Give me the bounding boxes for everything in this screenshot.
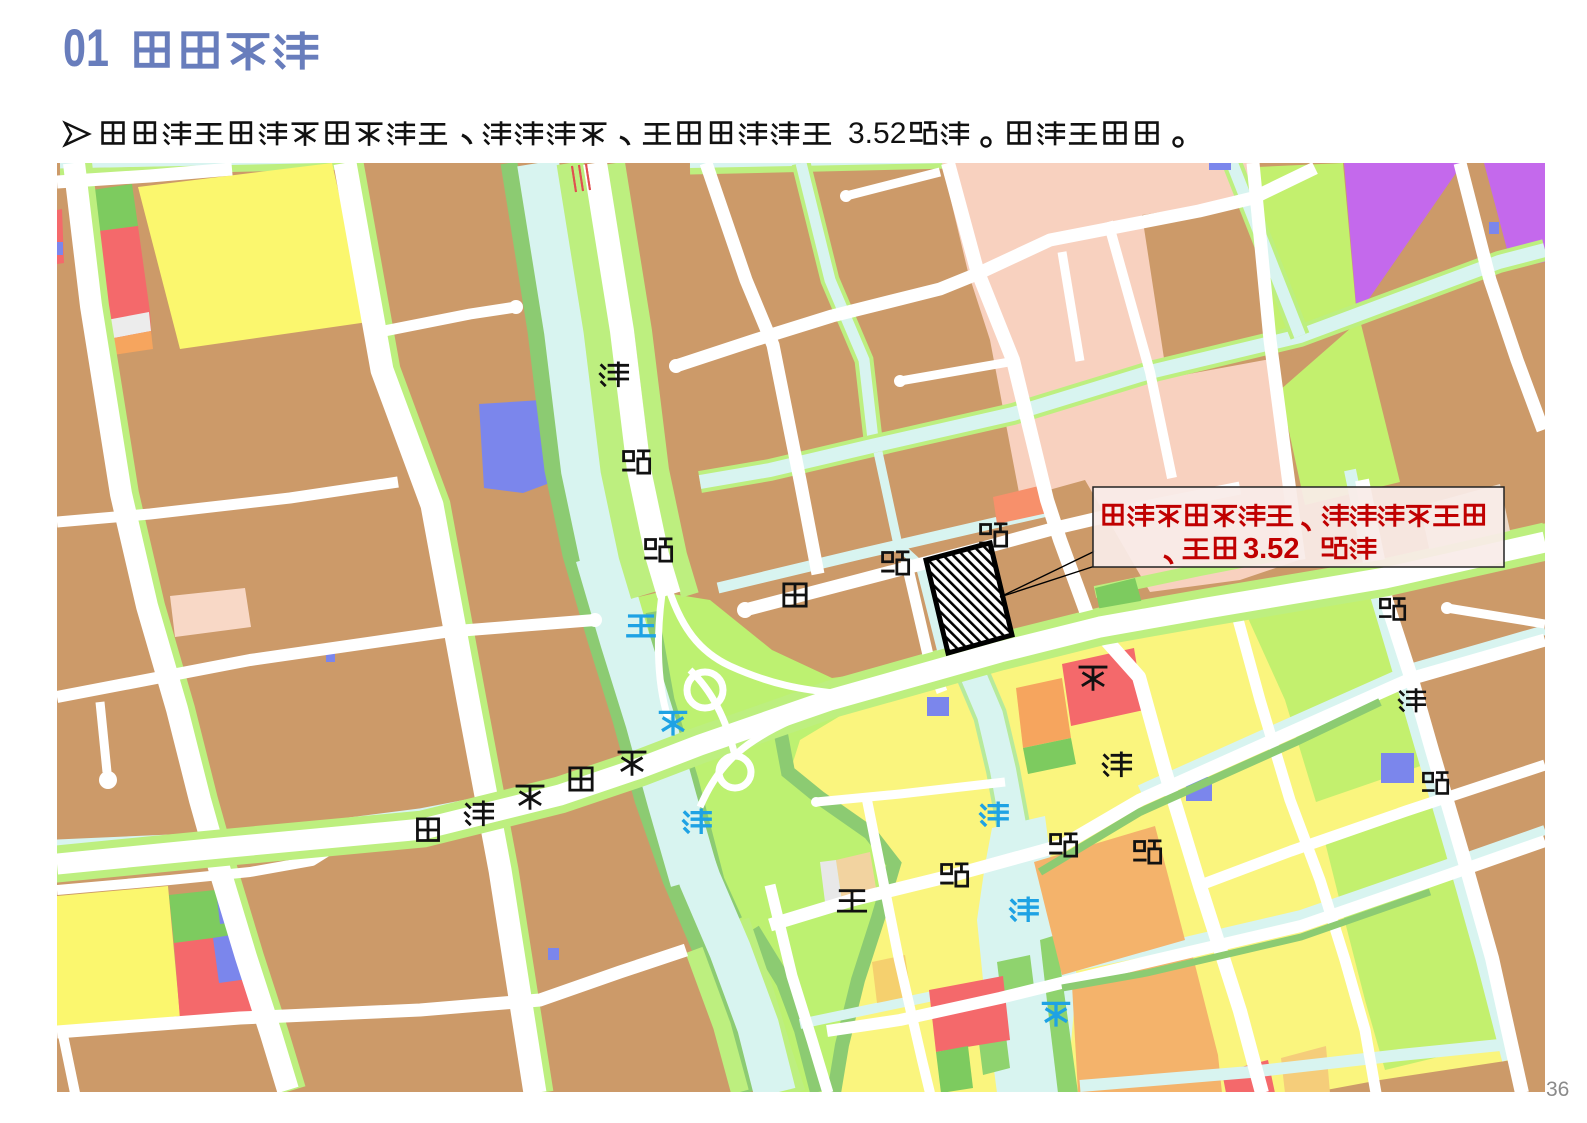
svg-text:36: 36 [1546, 1078, 1569, 1101]
svg-text:3.52: 3.52 [1243, 533, 1299, 565]
svg-text:01: 01 [63, 19, 109, 78]
svg-text:3.52: 3.52 [848, 117, 906, 150]
